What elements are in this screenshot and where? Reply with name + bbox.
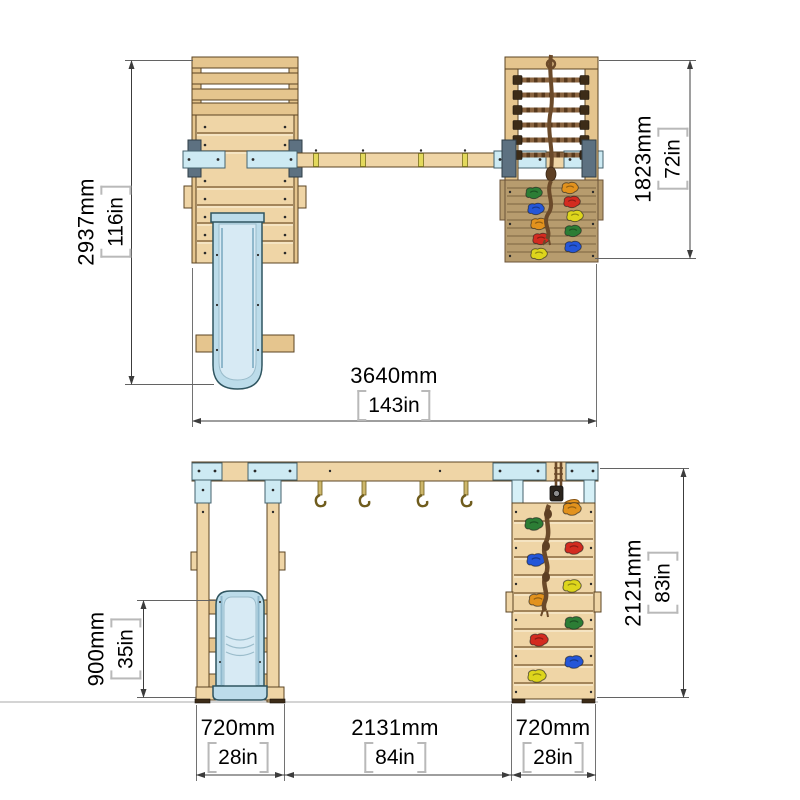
dim-mm-value: 2121mm	[621, 539, 645, 626]
dim-label-left-bay-width: 720mm 28in	[201, 716, 276, 773]
dim-mm-value: 2131mm	[351, 716, 438, 740]
dim-mm-value: 720mm	[516, 716, 591, 740]
monkey-bar-hook-icon	[360, 481, 369, 506]
dim-inch-value: 35in	[111, 618, 142, 680]
dim-inch-value: 83in	[648, 552, 679, 614]
dim-mm-value: 900mm	[84, 612, 108, 687]
rung-hanger-icon	[463, 154, 468, 167]
dim-mm-value: 2937mm	[74, 178, 98, 265]
monkey-bar-beam-top-view	[294, 149, 497, 167]
dim-mm-value: 1823mm	[631, 115, 655, 202]
dim-label-right-bay-width: 720mm 28in	[516, 716, 591, 773]
dim-mm-value: 720mm	[201, 716, 276, 740]
rung-hanger-icon	[314, 154, 319, 167]
dim-inch-value: 72in	[658, 128, 689, 190]
monkey-bar-hook-icon	[418, 481, 427, 506]
dim-inch-value: 84in	[364, 742, 426, 773]
monkey-bar-hooks	[316, 481, 471, 506]
dim-inch-value: 28in	[207, 742, 269, 773]
slide-bay-front	[191, 480, 285, 703]
dim-label-middle-bay-width: 2131mm 84in	[351, 716, 438, 773]
dim-inch-value: 116in	[101, 186, 132, 258]
climbing-wall-front	[506, 480, 601, 703]
slide-front	[213, 591, 267, 700]
dim-label-overall-width: 3640mm 143in	[350, 364, 437, 421]
climbing-wall-top-view	[500, 180, 603, 262]
dim-inch-value: 28in	[522, 742, 584, 773]
dim-inch-value: 143in	[357, 390, 430, 421]
slide-top-view	[211, 213, 264, 389]
monkey-bar-hook-icon	[462, 481, 471, 506]
dim-mm-value: 3640mm	[350, 364, 437, 388]
top-beam-front	[192, 462, 598, 481]
top-view	[183, 55, 603, 389]
monkey-bar-hook-icon	[316, 481, 325, 506]
rung-hanger-icon	[419, 154, 424, 167]
dimension-diagram: 2937mm 116in 1823mm 72in 3640mm 143in 90…	[0, 0, 800, 800]
rung-hanger-icon	[361, 154, 366, 167]
